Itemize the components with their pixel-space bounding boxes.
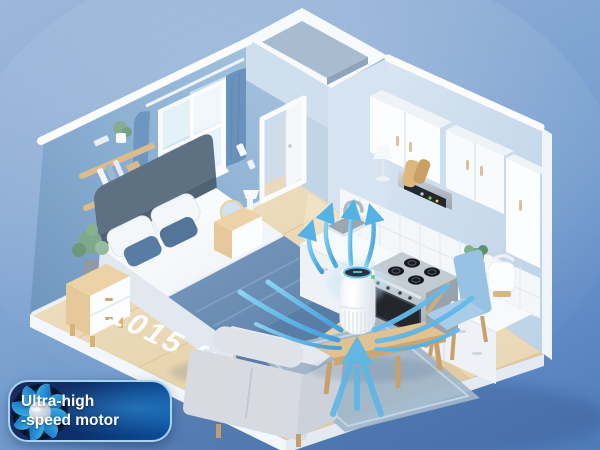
badge-text: Ultra-high -speed motor xyxy=(10,392,119,430)
right-wall-edge xyxy=(542,128,552,360)
badge-line2: -speed motor xyxy=(21,411,119,430)
purifier-status-light xyxy=(371,275,375,279)
badge-line1: Ultra-high xyxy=(21,392,119,411)
door-handle xyxy=(288,144,292,148)
promo-image: 1015 ft² xyxy=(0,0,600,450)
feature-badge: Ultra-high -speed motor xyxy=(8,380,172,442)
purifier-mesh xyxy=(345,310,369,333)
door-slab xyxy=(286,96,302,188)
